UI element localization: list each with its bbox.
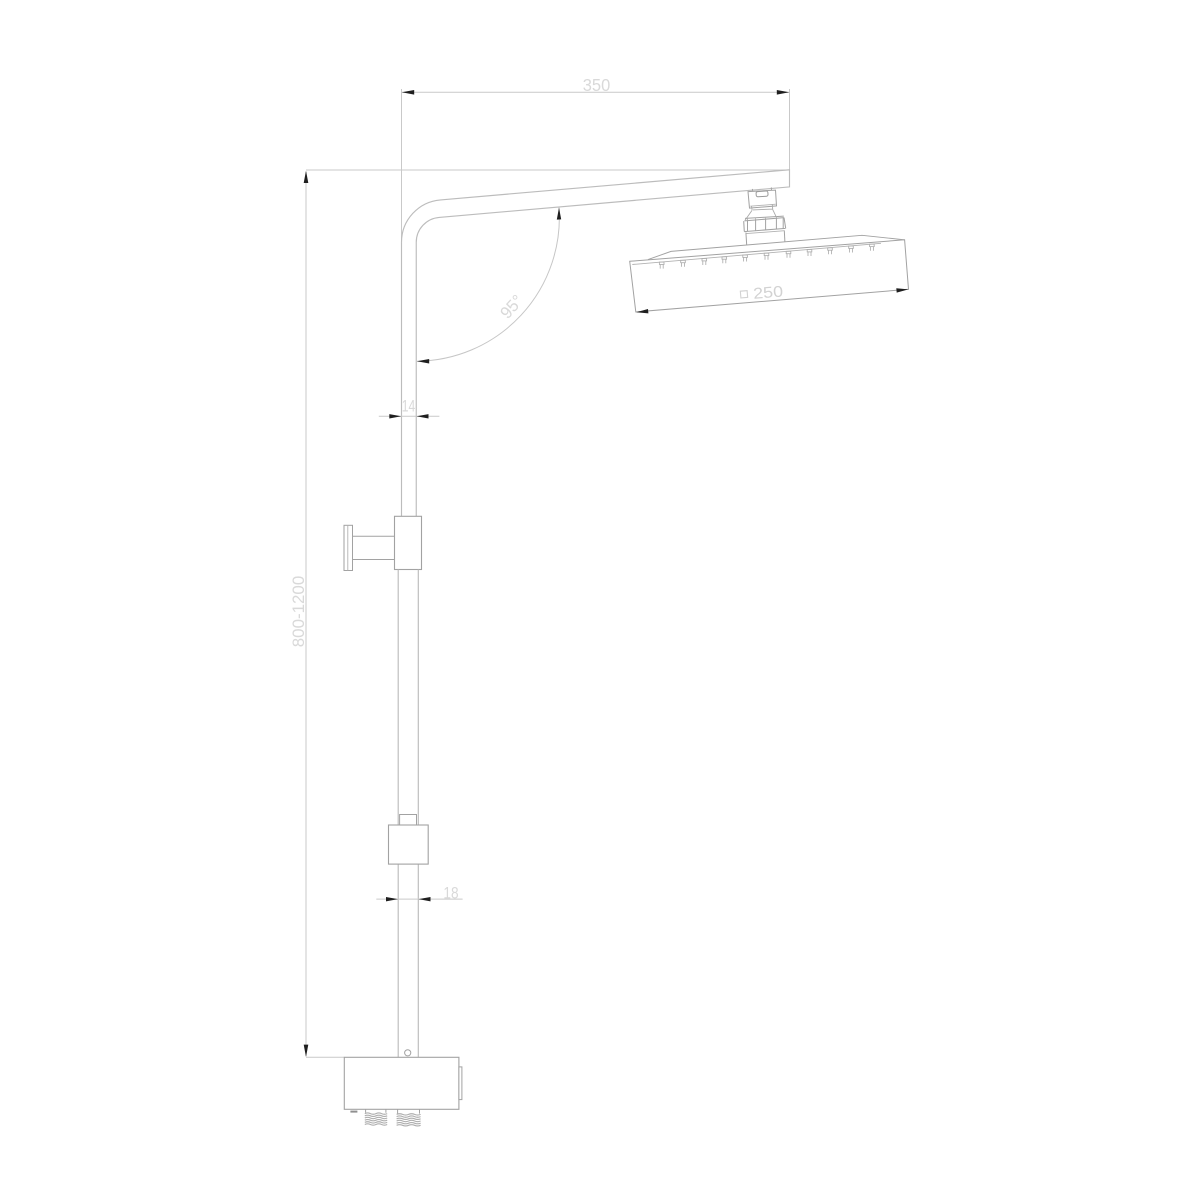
svg-text:18: 18 <box>443 883 458 902</box>
svg-text:350: 350 <box>583 75 611 95</box>
svg-text:800-1200: 800-1200 <box>289 576 308 648</box>
svg-text:250: 250 <box>752 283 784 302</box>
svg-text:14: 14 <box>402 397 416 416</box>
